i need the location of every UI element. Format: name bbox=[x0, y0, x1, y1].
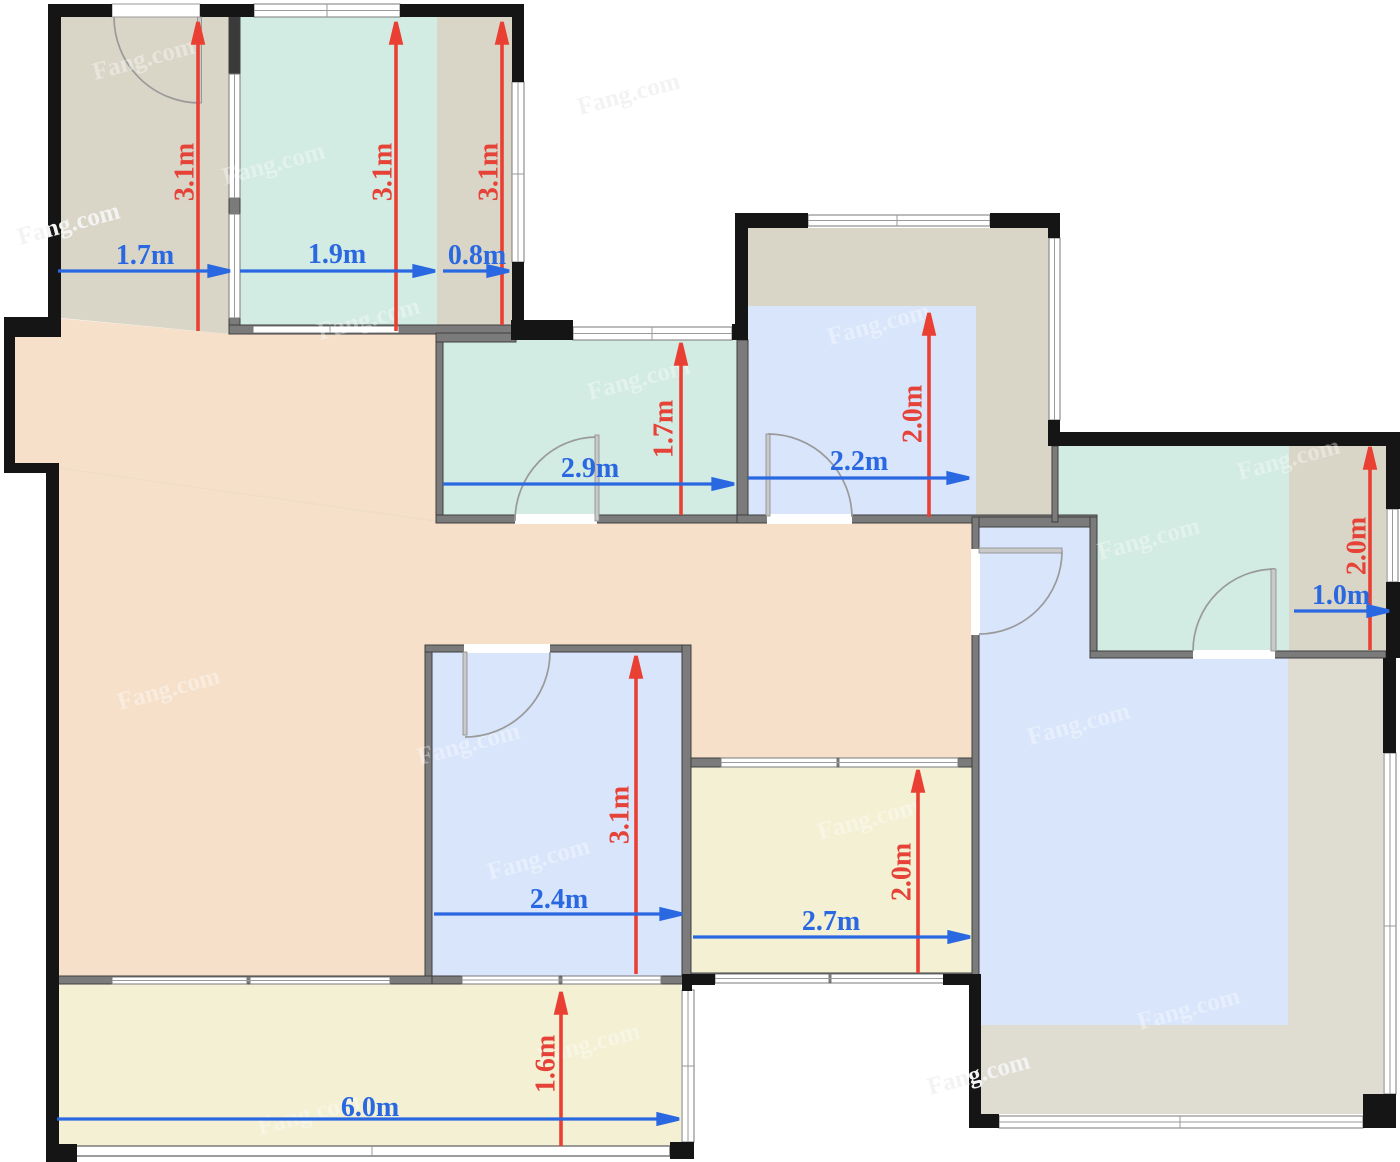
svg-text:2.7m: 2.7m bbox=[802, 906, 860, 937]
svg-text:2.2m: 2.2m bbox=[830, 446, 888, 477]
svg-text:2.4m: 2.4m bbox=[530, 884, 588, 915]
svg-text:2.0m: 2.0m bbox=[1342, 517, 1373, 575]
svg-text:3.1m: 3.1m bbox=[474, 143, 505, 201]
svg-text:1.6m: 1.6m bbox=[531, 1035, 562, 1093]
svg-text:1.7m: 1.7m bbox=[649, 400, 680, 458]
svg-text:1.9m: 1.9m bbox=[308, 239, 366, 270]
svg-text:3.1m: 3.1m bbox=[605, 786, 636, 844]
svg-text:2.0m: 2.0m bbox=[887, 843, 918, 901]
svg-text:2.9m: 2.9m bbox=[561, 453, 619, 484]
svg-text:1.7m: 1.7m bbox=[116, 240, 174, 271]
svg-text:6.0m: 6.0m bbox=[341, 1092, 399, 1123]
svg-text:1.0m: 1.0m bbox=[1312, 580, 1370, 611]
svg-text:2.0m: 2.0m bbox=[898, 385, 929, 443]
svg-text:3.1m: 3.1m bbox=[368, 143, 399, 201]
svg-text:3.1m: 3.1m bbox=[170, 143, 201, 201]
svg-text:0.8m: 0.8m bbox=[448, 240, 506, 271]
